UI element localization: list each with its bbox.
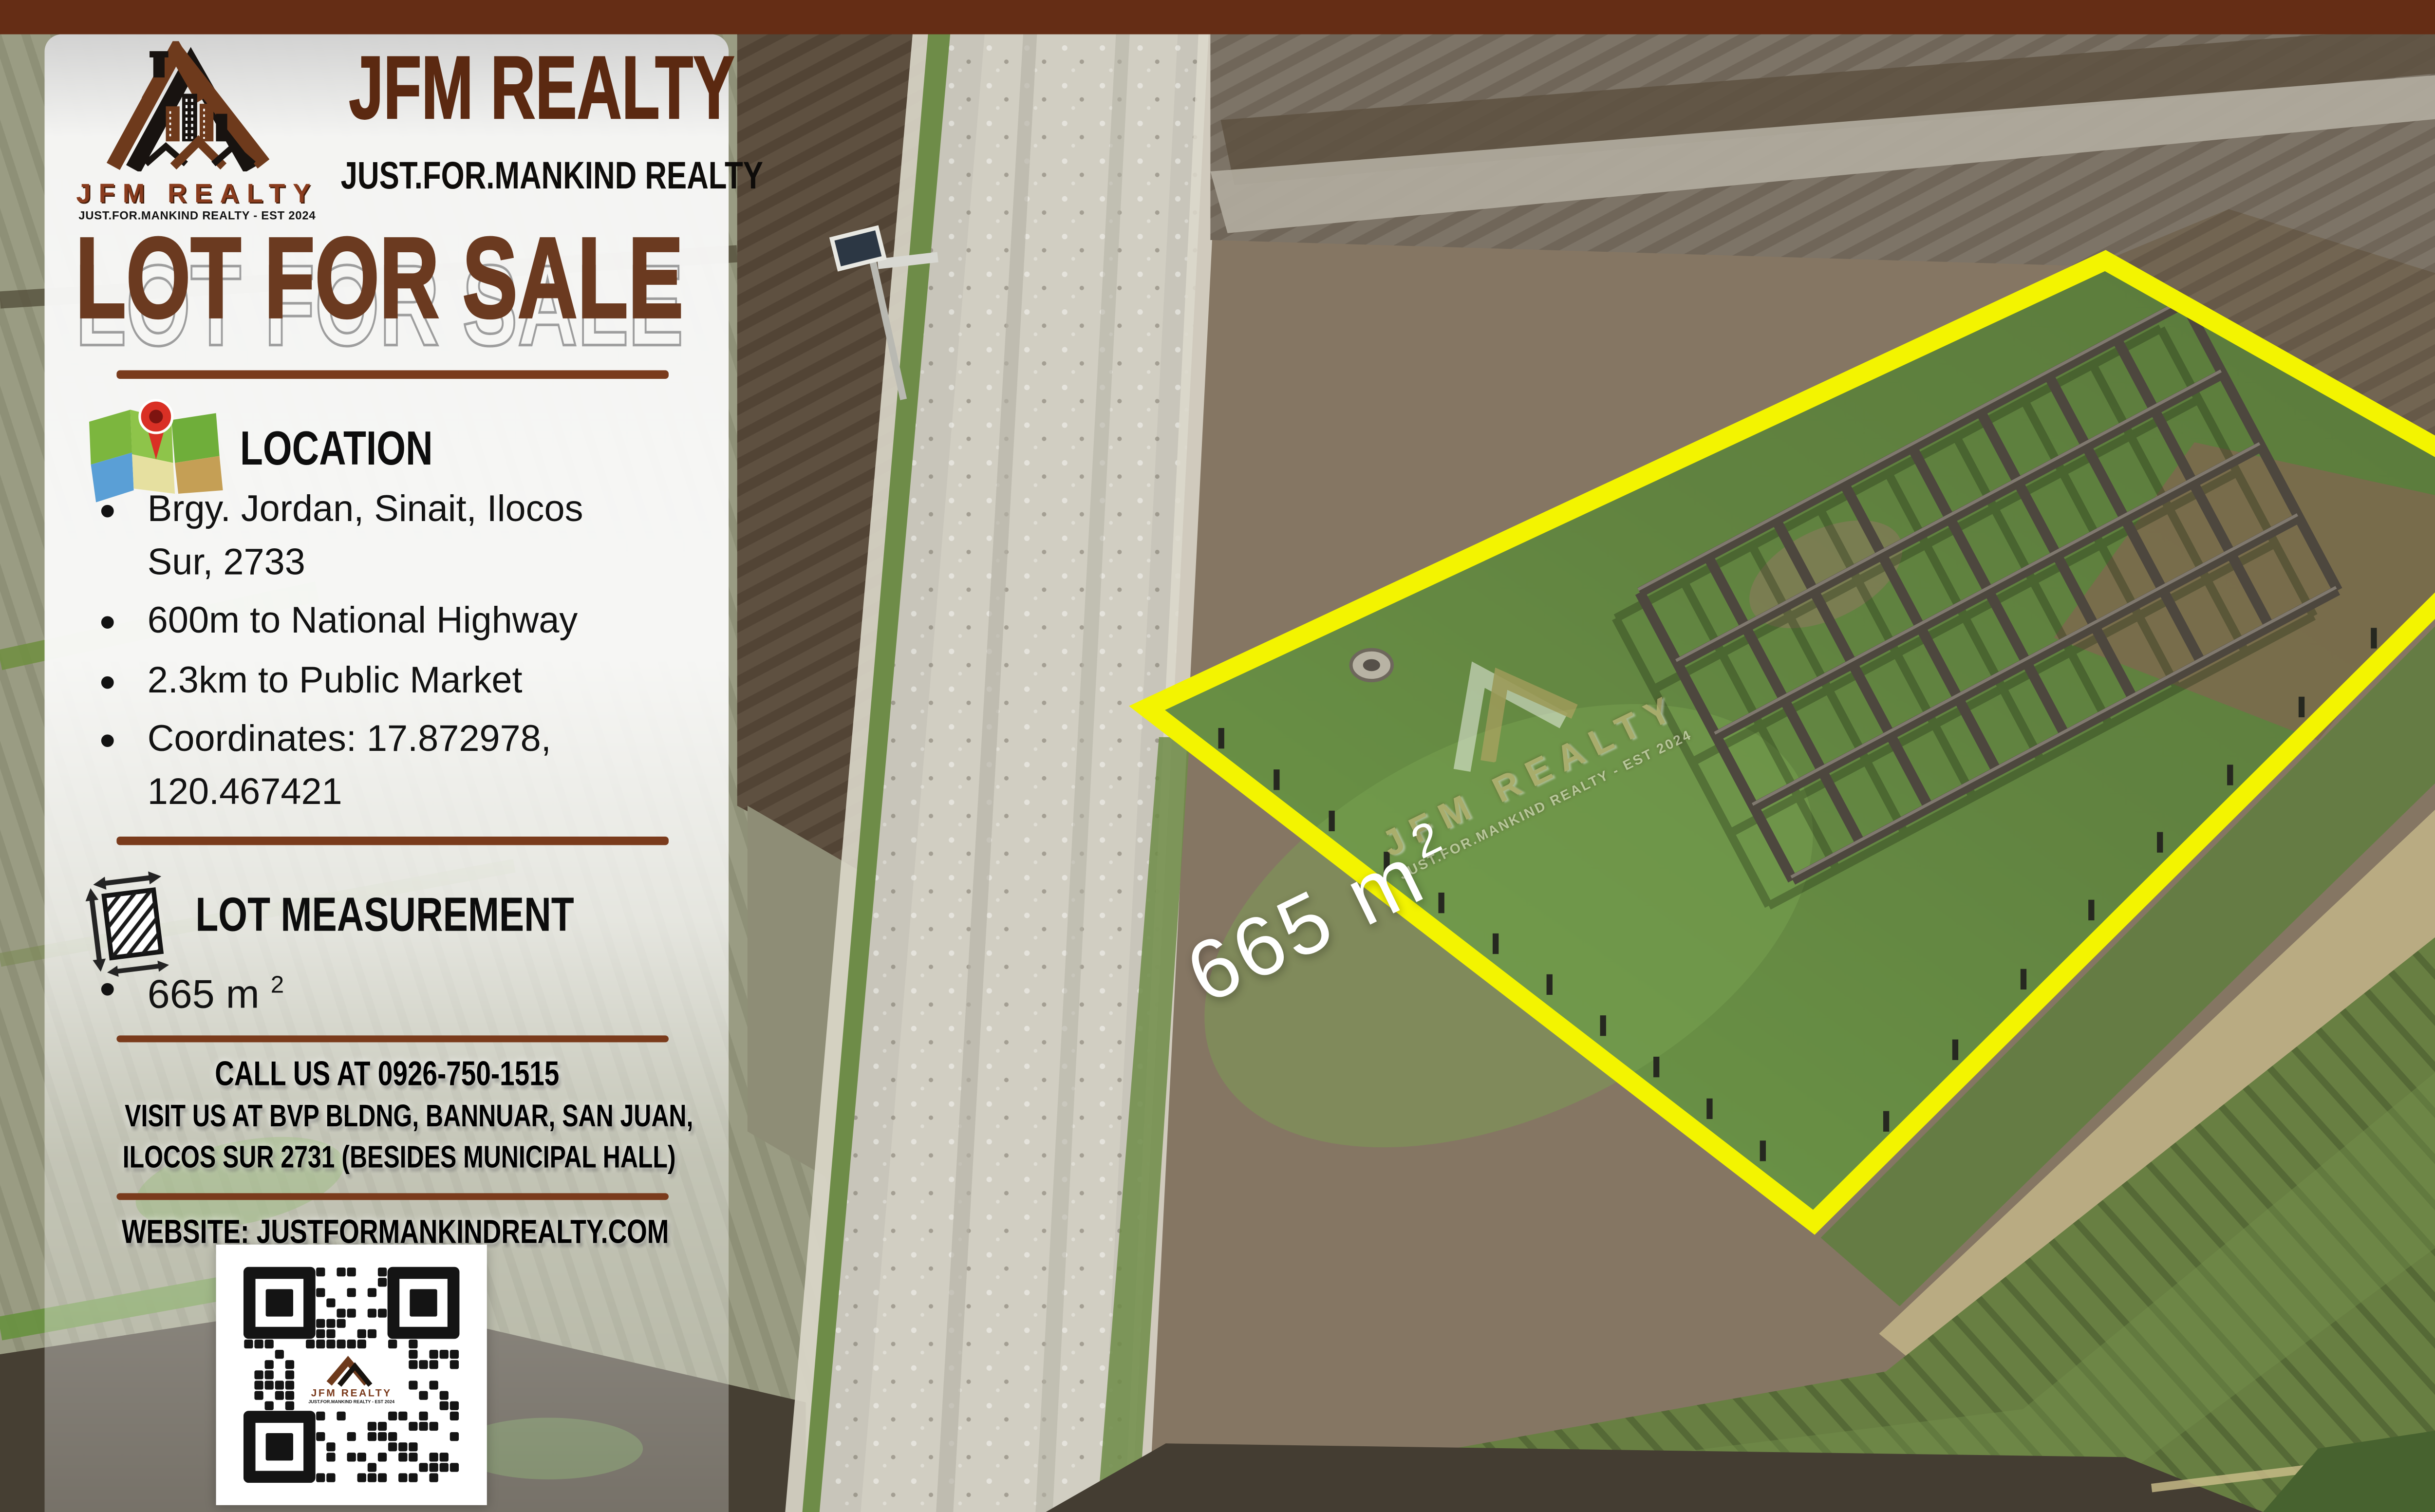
location-list: Brgy. Jordan, Sinait, Ilocos Sur, 2733 6… (96, 484, 648, 825)
brand-heading: JFM REALTY (281, 48, 710, 132)
headline: LOT FOR SALE (75, 215, 683, 343)
area-measurement: 665 m 2 (96, 971, 780, 1018)
qr-card: JFM REALTY JUST.FOR.MANKIND REALTY - EST… (216, 1245, 487, 1505)
divider (116, 1193, 669, 1200)
brand-title: JFM REALTY (349, 40, 734, 138)
brand-subtitle: JUST.FOR.MANKIND REALTY (341, 154, 763, 197)
qr-center-title: JFM REALTY (311, 1387, 392, 1399)
divider (116, 1035, 669, 1042)
visit-address-line2: ILOCOS SUR 2731 (BESIDES MUNICIPAL HALL) (123, 1140, 676, 1174)
list-item: 600m to National Highway (96, 595, 648, 647)
location-title-wrap: LOCATION (240, 422, 487, 477)
qr-finder-top-left (243, 1267, 316, 1339)
qr-center-logo: JFM REALTY JUST.FOR.MANKIND REALTY - EST… (295, 1353, 408, 1406)
header-band (0, 0, 2435, 34)
flyer: JFM REALTY JUST.FOR.MANKIND REALTY - EST… (0, 0, 2435, 1512)
list-item: 2.3km to Public Market (96, 654, 648, 706)
measurement-title-wrap: LOT MEASUREMENT (195, 888, 681, 943)
visit-line1-wrap: VISIT US AT BVP BLDNG, BANNUAR, SAN JUAN… (45, 1099, 729, 1135)
phone-number: CALL US AT 0926-750-1515 (214, 1056, 559, 1094)
list-item: Brgy. Jordan, Sinait, Ilocos Sur, 2733 (96, 484, 648, 588)
qr-finder-top-right (388, 1267, 460, 1339)
qr-finder-bottom-left (243, 1411, 316, 1483)
qr-code: JFM REALTY JUST.FOR.MANKIND REALTY - EST… (243, 1267, 460, 1483)
visit-line2-wrap: ILOCOS SUR 2731 (BESIDES MUNICIPAL HALL) (45, 1140, 729, 1176)
lot-measure-icon (82, 860, 185, 980)
info-panel: JFM REALTY JUST.FOR.MANKIND REALTY - EST… (45, 34, 729, 1512)
brand-subheading: JUST.FOR.MANKIND REALTY (281, 154, 710, 199)
list-item: Coordinates: 17.872978, 120.467421 (96, 713, 648, 818)
visit-address-line1: VISIT US AT BVP BLDNG, BANNUAR, SAN JUAN… (125, 1099, 693, 1133)
measurement-title: LOT MEASUREMENT (195, 888, 574, 941)
divider (116, 370, 669, 378)
call-line-wrap: CALL US AT 0926-750-1515 (45, 1056, 729, 1096)
qr-center-tagline: JUST.FOR.MANKIND REALTY - EST 2024 (308, 1399, 395, 1404)
divider (116, 837, 669, 844)
location-title: LOCATION (240, 422, 433, 475)
headline-block: LOT FOR SALE LOT FOR SALE (75, 223, 718, 381)
